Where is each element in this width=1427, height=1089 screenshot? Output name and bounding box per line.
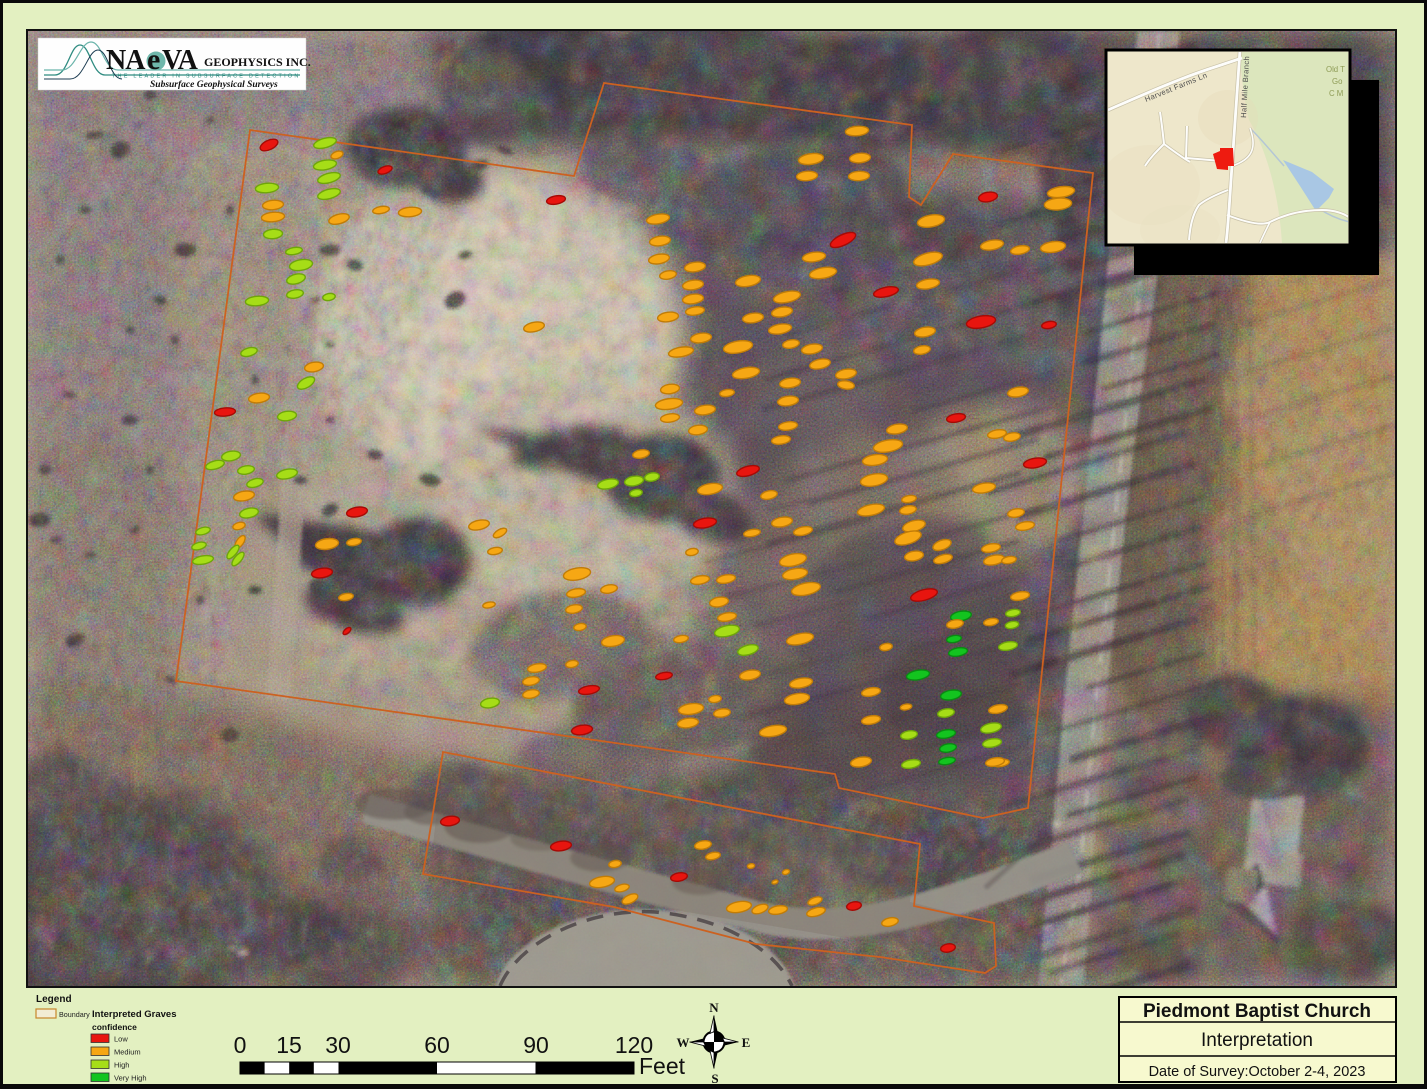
svg-text:Go: Go [1332,77,1343,86]
svg-text:NA: NA [106,45,146,76]
svg-text:High: High [114,1061,129,1070]
svg-text:C M: C M [1329,89,1343,98]
svg-text:90: 90 [523,1032,549,1058]
svg-text:Date of Survey:October 2-4, 20: Date of Survey:October 2-4, 2023 [1149,1064,1366,1080]
svg-text:15: 15 [276,1032,302,1058]
svg-text:Interpreted Graves: Interpreted Graves [92,1009,176,1020]
svg-text:Feet: Feet [639,1053,686,1079]
svg-text:Legend: Legend [36,994,72,1005]
svg-text:THE LEADER IN SUBSURFACE DETEC: THE LEADER IN SUBSURFACE DETECTION [112,74,301,80]
svg-text:VA: VA [162,45,199,76]
svg-text:Subsurface Geophysical Surveys: Subsurface Geophysical Surveys [150,80,278,90]
svg-text:W: W [677,1035,690,1050]
svg-text:30: 30 [325,1032,351,1058]
svg-text:e: e [147,43,160,76]
svg-text:E: E [742,1035,751,1050]
svg-text:S: S [711,1071,718,1086]
svg-text:60: 60 [424,1032,450,1058]
svg-text:N: N [709,1000,719,1015]
svg-text:0: 0 [234,1032,247,1058]
svg-text:Piedmont Baptist Church: Piedmont Baptist Church [1143,1001,1371,1022]
svg-text:Boundary: Boundary [59,1010,90,1019]
svg-text:GEOPHYSICS INC.: GEOPHYSICS INC. [204,55,311,69]
svg-text:Interpretation: Interpretation [1201,1030,1313,1051]
svg-text:Low: Low [114,1035,128,1044]
svg-text:Very High: Very High [114,1074,147,1083]
svg-text:confidence: confidence [92,1022,137,1032]
svg-text:Medium: Medium [114,1048,141,1057]
svg-text:Old T: Old T [1326,65,1345,74]
